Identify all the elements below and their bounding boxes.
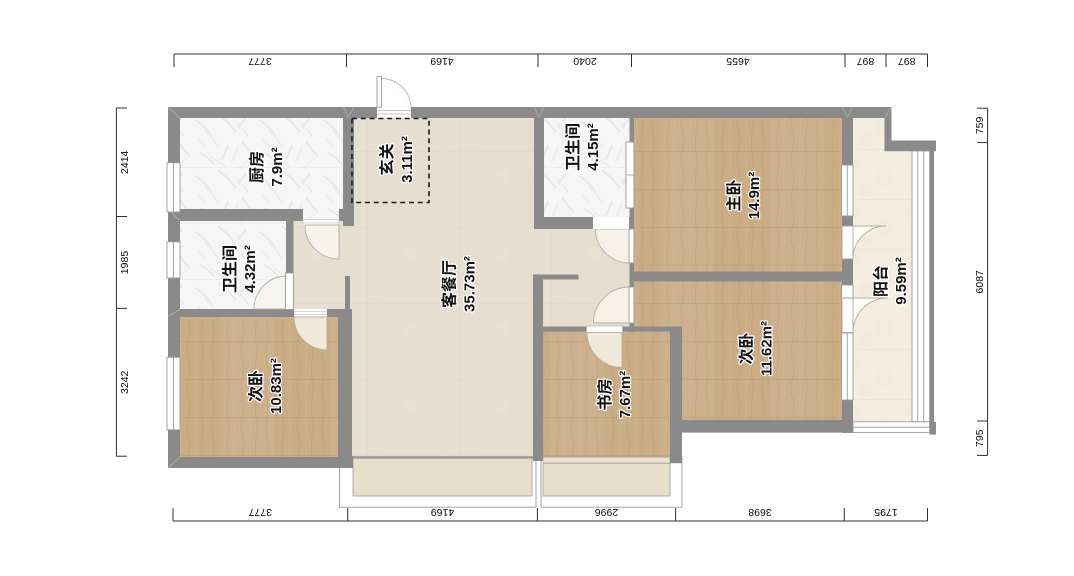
svg-text:4655: 4655 xyxy=(726,55,750,67)
svg-text:897: 897 xyxy=(898,55,916,67)
svg-text:795: 795 xyxy=(974,429,986,447)
svg-text:1795: 1795 xyxy=(874,506,898,518)
svg-text:6087: 6087 xyxy=(974,270,986,294)
svg-text:7.9m²: 7.9m² xyxy=(269,147,286,186)
svg-text:3777: 3777 xyxy=(248,55,272,67)
svg-text:4.15m²: 4.15m² xyxy=(585,123,602,171)
svg-text:3242: 3242 xyxy=(119,370,131,394)
svg-text:897: 897 xyxy=(857,55,875,67)
svg-text:3698: 3698 xyxy=(748,506,772,518)
svg-text:4169: 4169 xyxy=(430,55,454,67)
svg-text:4169: 4169 xyxy=(431,506,455,518)
svg-text:7.67m²: 7.67m² xyxy=(617,371,634,419)
svg-text:10.83m²: 10.83m² xyxy=(268,358,285,414)
svg-text:1985: 1985 xyxy=(119,251,131,275)
svg-text:9.59m²: 9.59m² xyxy=(893,257,910,305)
svg-text:3777: 3777 xyxy=(248,506,272,518)
svg-text:759: 759 xyxy=(974,116,986,134)
svg-text:2040: 2040 xyxy=(573,55,597,67)
svg-text:11.62m²: 11.62m² xyxy=(759,321,776,376)
svg-text:3.11m²: 3.11m² xyxy=(399,136,416,183)
svg-text:2996: 2996 xyxy=(595,506,619,518)
svg-text:35.73m²: 35.73m² xyxy=(462,256,479,312)
svg-text:2414: 2414 xyxy=(119,150,131,174)
svg-text:14.9m²: 14.9m² xyxy=(746,172,763,220)
svg-text:4.32m²: 4.32m² xyxy=(242,245,259,293)
